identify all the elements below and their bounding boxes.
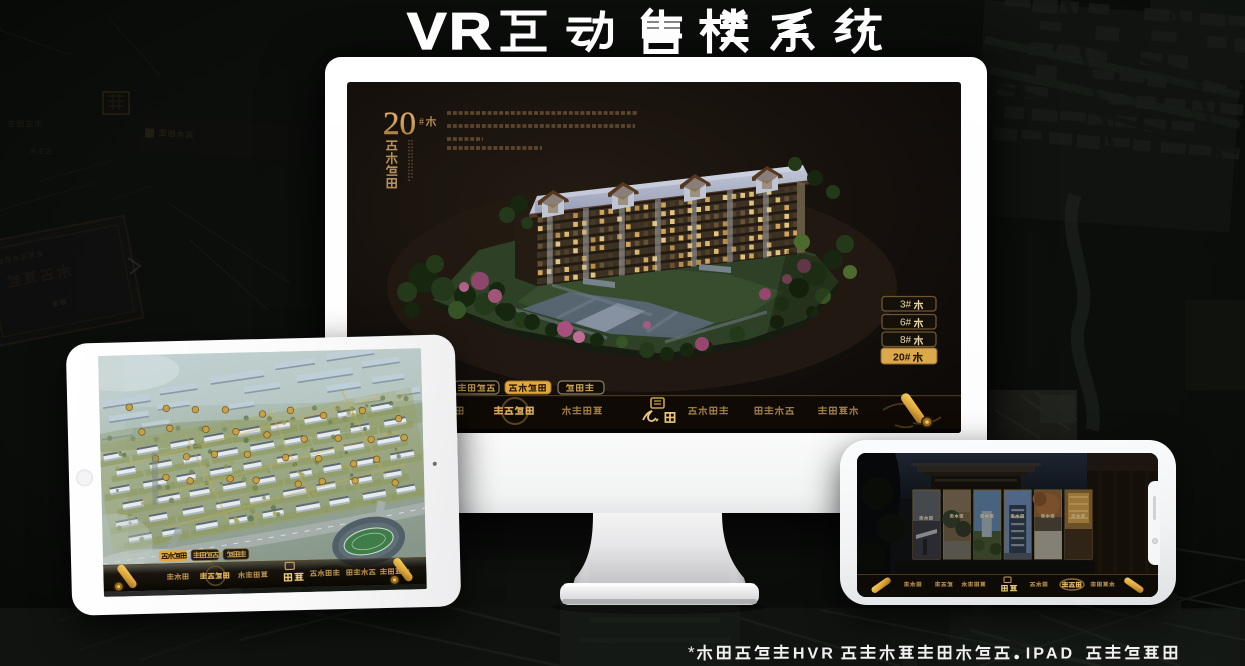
svg-text:20#: 20# bbox=[893, 352, 911, 364]
svg-text:20: 20 bbox=[383, 106, 416, 142]
svg-text:#: # bbox=[419, 117, 424, 128]
svg-text:*: * bbox=[688, 643, 695, 662]
svg-text:3#: 3# bbox=[900, 300, 912, 311]
svg-text:HVR: HVR bbox=[793, 645, 836, 663]
svg-text:VR: VR bbox=[407, 2, 494, 60]
svg-text:6#: 6# bbox=[900, 318, 912, 329]
svg-text:8#: 8# bbox=[900, 335, 912, 346]
svg-text:IPAD: IPAD bbox=[1026, 645, 1075, 663]
